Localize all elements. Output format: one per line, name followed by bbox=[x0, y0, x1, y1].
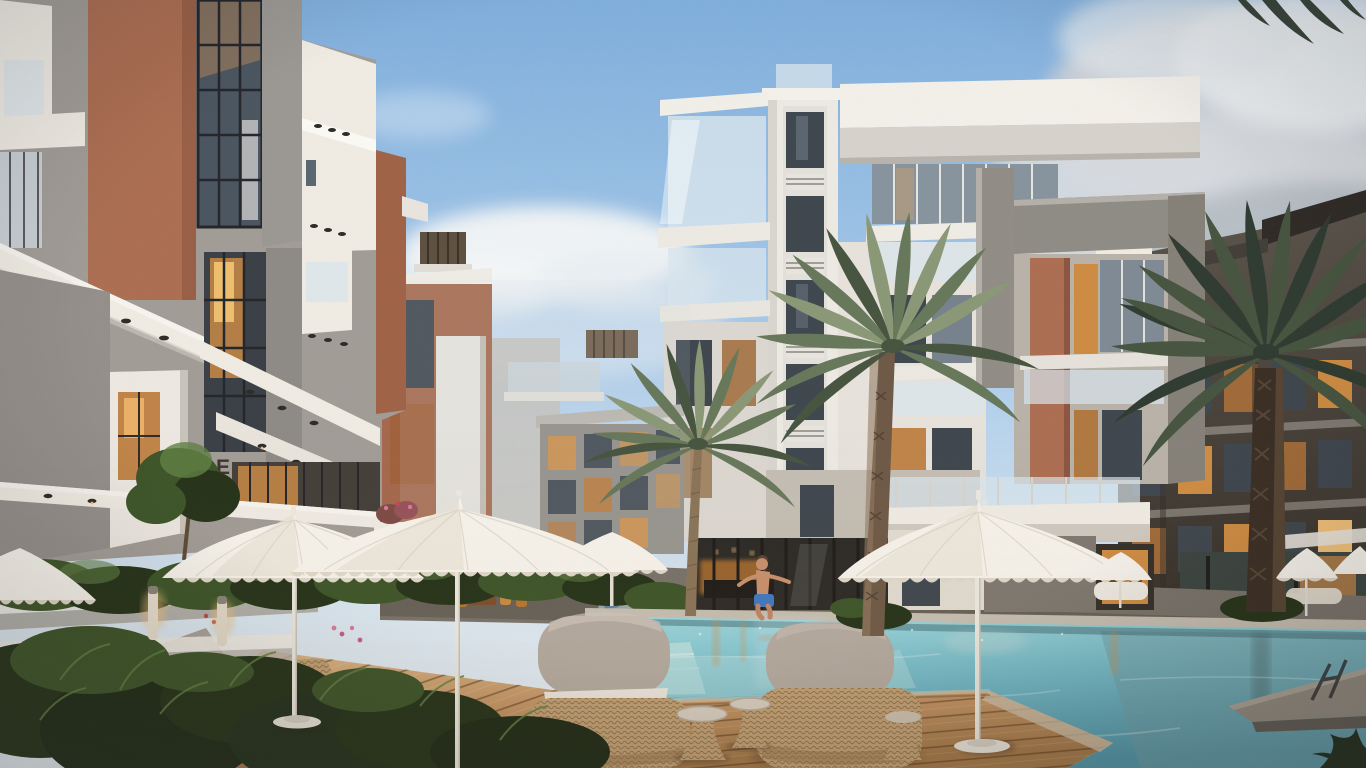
render-viewport: E bbox=[0, 0, 1366, 768]
courtyard-render: E bbox=[0, 0, 1366, 768]
vignette bbox=[0, 0, 1366, 768]
